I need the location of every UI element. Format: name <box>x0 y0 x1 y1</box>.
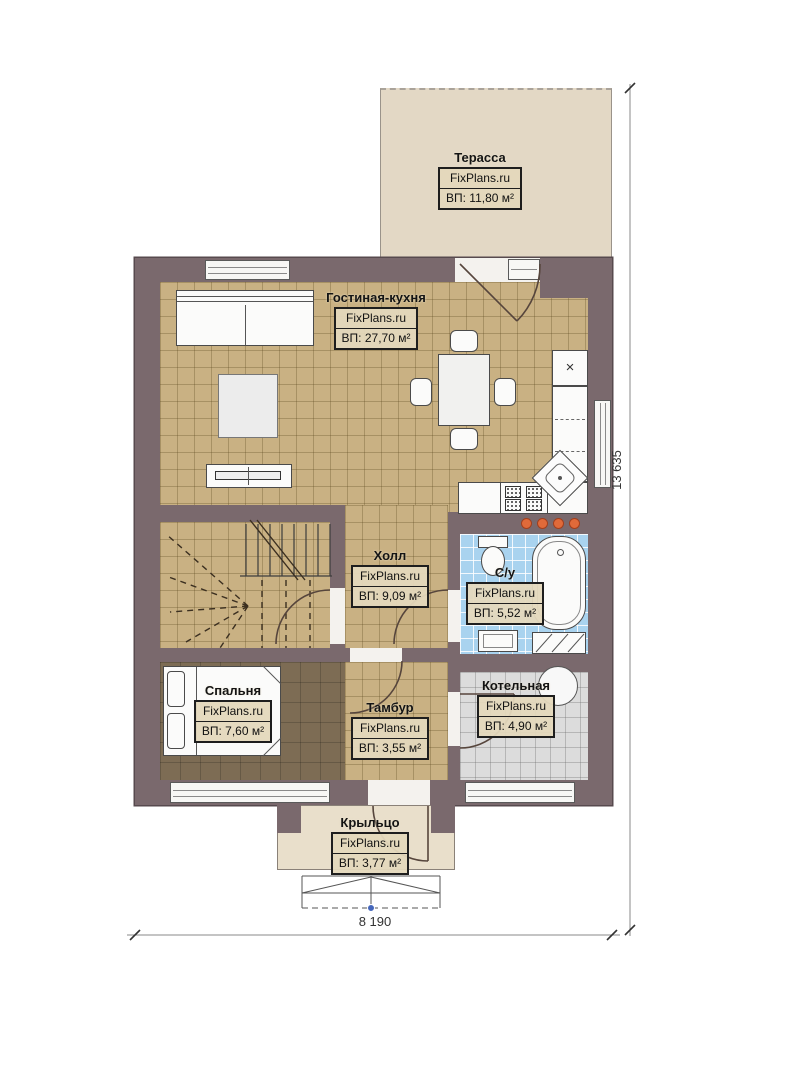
corner-notch <box>540 282 588 298</box>
area-value: ВП: 7,60 м² <box>196 721 270 741</box>
window-bottom-right <box>465 782 575 803</box>
room-name: С/у <box>425 565 585 580</box>
window-top <box>205 260 290 280</box>
dining-table <box>438 354 490 426</box>
terrace-sidelight-window <box>508 259 540 280</box>
fridge: × <box>552 350 588 386</box>
fixplans-watermark: FixPlans.ru <box>353 719 427 738</box>
chair <box>450 428 478 450</box>
label-box: FixPlans.ru ВП: 9,09 м² <box>351 565 429 608</box>
fixplans-watermark: FixPlans.ru <box>468 584 542 603</box>
door-opening-tambour <box>350 648 402 662</box>
fixplans-watermark: FixPlans.ru <box>353 567 427 586</box>
room-name: Крыльцо <box>290 815 450 830</box>
bathroom-sink <box>478 630 518 652</box>
room-label-terrace: Терасса FixPlans.ru ВП: 11,80 м² <box>400 150 560 210</box>
label-box: FixPlans.ru ВП: 27,70 м² <box>334 307 419 350</box>
window-bottom-left <box>170 782 330 803</box>
room-name: Терасса <box>400 150 560 165</box>
dimension-label-height: 13 635 <box>609 430 625 510</box>
room-name: Холл <box>310 548 470 563</box>
room-label-bedroom: Спальня FixPlans.ru ВП: 7,60 м² <box>153 683 313 743</box>
fixplans-watermark: FixPlans.ru <box>196 702 270 721</box>
label-box: FixPlans.ru ВП: 3,77 м² <box>331 832 409 875</box>
area-value: ВП: 27,70 м² <box>336 328 417 348</box>
label-box: FixPlans.ru ВП: 4,90 м² <box>477 695 555 738</box>
radiator-dot <box>553 518 564 529</box>
label-box: FixPlans.ru ВП: 11,80 м² <box>438 167 522 210</box>
fixplans-watermark: FixPlans.ru <box>333 834 407 853</box>
fixplans-watermark: FixPlans.ru <box>479 697 553 716</box>
area-value: ВП: 9,09 м² <box>353 586 427 606</box>
stairs-floor <box>160 522 330 648</box>
area-value: ВП: 5,52 м² <box>468 603 542 623</box>
fixplans-watermark: FixPlans.ru <box>336 309 417 328</box>
radiator-dot <box>569 518 580 529</box>
area-value: ВП: 11,80 м² <box>440 188 520 208</box>
area-value: ВП: 4,90 м² <box>479 716 553 736</box>
sofa <box>176 290 314 346</box>
fridge-cross-icon: × <box>566 359 575 376</box>
label-box: FixPlans.ru ВП: 5,52 м² <box>466 582 544 625</box>
label-box: FixPlans.ru ВП: 3,55 м² <box>351 717 429 760</box>
tv-stand <box>206 464 292 488</box>
area-value: ВП: 3,77 м² <box>333 853 407 873</box>
wall-bedroom-top <box>160 648 448 662</box>
bathtub-drain <box>557 549 564 556</box>
area-value: ВП: 3,55 м² <box>353 738 427 758</box>
room-label-living: Гостиная-кухня FixPlans.ru ВП: 27,70 м² <box>296 290 456 350</box>
corner-sink-drain <box>558 476 562 480</box>
wall-kitchen-bath <box>448 512 588 534</box>
dimension-label-width: 8 190 <box>330 914 420 929</box>
chair <box>494 378 516 406</box>
washer <box>532 632 586 654</box>
room-label-bathroom: С/у FixPlans.ru ВП: 5,52 м² <box>425 565 585 625</box>
radiator-dot <box>537 518 548 529</box>
door-opening-entrance <box>368 780 430 805</box>
room-name: Котельная <box>436 678 596 693</box>
coffee-table <box>218 374 278 438</box>
room-label-porch: Крыльцо FixPlans.ru ВП: 3,77 м² <box>290 815 450 875</box>
floor-plan: × <box>0 0 792 1080</box>
room-name: Гостиная-кухня <box>296 290 456 305</box>
radiator-dot <box>521 518 532 529</box>
label-box: FixPlans.ru ВП: 7,60 м² <box>194 700 272 743</box>
chair <box>410 378 432 406</box>
room-label-boiler: Котельная FixPlans.ru ВП: 4,90 м² <box>436 678 596 738</box>
room-name: Спальня <box>153 683 313 698</box>
wall-living-stairs <box>160 505 345 522</box>
fixplans-watermark: FixPlans.ru <box>440 169 520 188</box>
